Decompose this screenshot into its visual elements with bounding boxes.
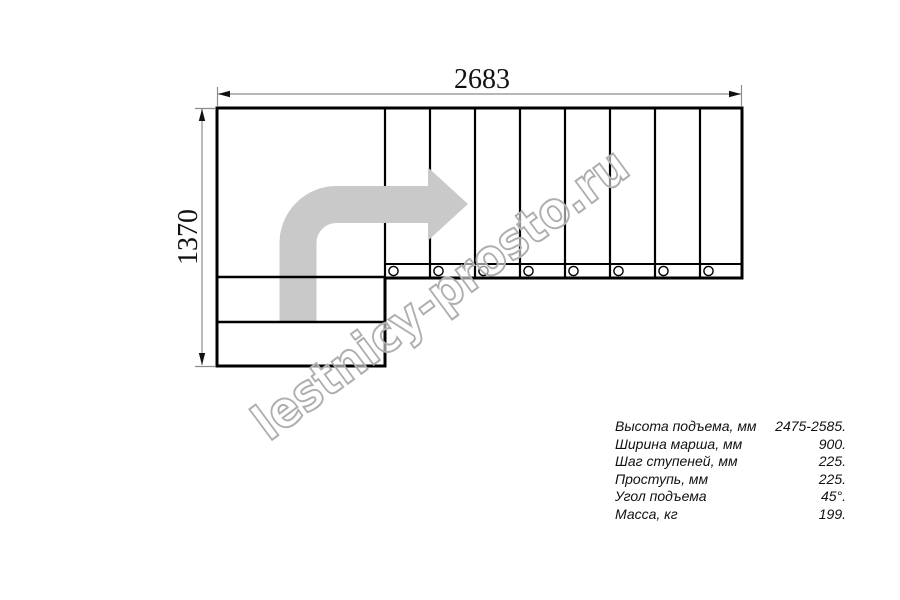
spec-value: 900. [819,436,846,454]
height-dimension-value: 1370 [173,209,204,265]
spec-label: Ширина марша, мм [615,436,742,454]
specifications-list: Высота подъема, мм 2475-2585. Ширина мар… [615,418,846,523]
spec-value: 199. [819,506,846,524]
stair-drawing-page: 2683 1370 lestnicy-prosto.ru Высота подъ… [0,0,900,600]
dimension-arrowhead [199,109,205,121]
spec-label: Масса, кг [615,506,678,524]
fastener-hole [569,266,578,275]
spec-value: 2475-2585. [775,418,846,436]
spec-value: 225. [819,453,846,471]
fastener-hole [704,266,713,275]
spec-label: Шаг ступеней, мм [615,453,738,471]
spec-row-flight-width: Ширина марша, мм 900. [615,436,846,454]
spec-row-tread-depth: Проступь, мм 225. [615,471,846,489]
spec-label: Угол подъема [615,488,707,506]
direction-arrow-head [428,168,468,241]
spec-row-angle: Угол подъема 45°. [615,488,846,506]
dimension-arrowhead [729,91,741,97]
fastener-hole [659,266,668,275]
spec-value: 45°. [821,488,846,506]
spec-row-height: Высота подъема, мм 2475-2585. [615,418,846,436]
spec-label: Проступь, мм [615,471,708,489]
fastener-hole [389,266,398,275]
height-dimension: 1370 [173,109,215,367]
fastener-hole [524,266,533,275]
dimension-arrowhead [218,91,230,97]
width-dimension-value: 2683 [454,64,510,95]
width-dimension: 2683 [218,64,742,106]
spec-row-mass: Масса, кг 199. [615,506,846,524]
fastener-hole [614,266,623,275]
spec-row-step-pitch: Шаг ступеней, мм 225. [615,453,846,471]
dimension-arrowhead [199,353,205,365]
spec-value: 225. [819,471,846,489]
spec-label: Высота подъема, мм [615,418,757,436]
